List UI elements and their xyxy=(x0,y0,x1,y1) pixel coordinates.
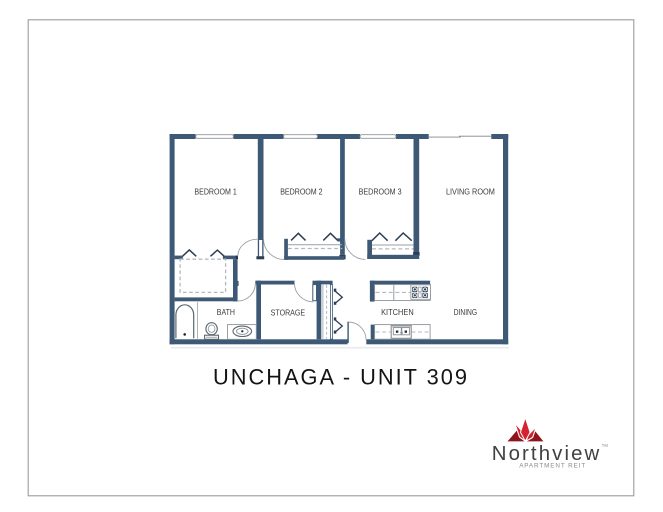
svg-text:BEDROOM 3: BEDROOM 3 xyxy=(359,187,402,197)
svg-text:TM: TM xyxy=(602,443,609,448)
svg-text:APARTMENT REIT: APARTMENT REIT xyxy=(519,463,585,470)
svg-text:DINING: DINING xyxy=(454,307,477,317)
svg-text:BEDROOM 2: BEDROOM 2 xyxy=(280,187,323,197)
svg-text:LIVING ROOM: LIVING ROOM xyxy=(446,187,495,197)
svg-text:BEDROOM 1: BEDROOM 1 xyxy=(194,187,237,197)
svg-text:STORAGE: STORAGE xyxy=(271,307,306,317)
svg-text:KITCHEN: KITCHEN xyxy=(381,307,414,317)
svg-text:BATH: BATH xyxy=(217,307,235,317)
svg-text:UNCHAGA - UNIT 309: UNCHAGA - UNIT 309 xyxy=(213,365,467,390)
